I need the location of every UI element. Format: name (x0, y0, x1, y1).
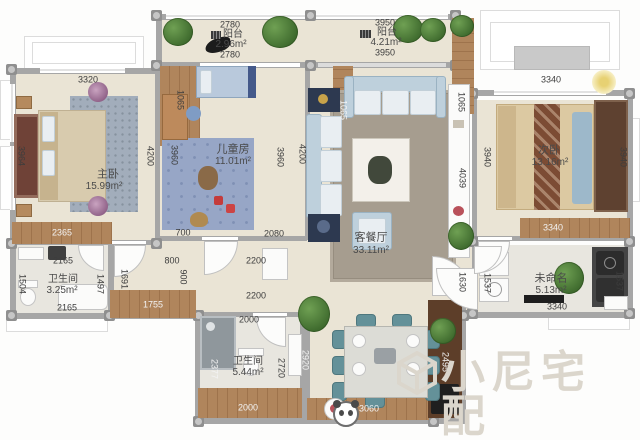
window (40, 68, 125, 73)
pillow (42, 116, 55, 142)
sofa-cushion (354, 90, 381, 115)
label-kids-name: 儿童房 (217, 145, 250, 156)
sofa-cushion (410, 90, 436, 115)
wall-post (6, 64, 17, 75)
dim-hall-800: 800 (164, 257, 179, 266)
window (494, 90, 606, 95)
tv-decor (453, 206, 464, 216)
panda-ear (351, 400, 359, 408)
dim-bath2-top: 2000 (239, 316, 259, 325)
dim-kids-right: 3960 (276, 147, 285, 167)
tv-decor (453, 120, 464, 128)
door-gap (202, 237, 238, 240)
label-living-name: 客餐厅 (355, 233, 388, 244)
plate (352, 362, 366, 376)
watermark-logo (396, 350, 438, 396)
dim-bath1-left: 1504 (18, 274, 27, 294)
dim-bath1-right: 1497 (96, 274, 105, 294)
toy (226, 204, 235, 213)
bay-window (6, 318, 108, 332)
pillow-band (498, 106, 516, 208)
dim-kids-left: 3960 (170, 145, 179, 165)
dim-kids-700: 700 (175, 229, 190, 238)
door-gap (112, 241, 146, 244)
label-kids-area: 11.01m² (215, 157, 251, 167)
wardrobe (520, 218, 630, 238)
dim-unnamed-outer: 1630 (458, 272, 467, 292)
label-master-name: 主卧 (97, 170, 119, 181)
label-second-area: 13.16m² (532, 158, 569, 168)
pillow (42, 150, 55, 176)
plant (420, 18, 446, 42)
label-balcony2-area: 4.21m² (370, 38, 401, 48)
dim-bath2-left: 2377 (210, 359, 219, 379)
panda-eye (348, 410, 353, 416)
wall-post (305, 10, 316, 21)
wall (10, 313, 114, 319)
teddy-bear-toy (198, 166, 218, 190)
label-bath2-name: 卫生间 (233, 357, 263, 367)
label-bath1-name: 卫生间 (48, 275, 78, 285)
label-unnamed-area: 5.13m² (535, 286, 566, 296)
dim-master-left: 3964 (17, 146, 26, 166)
sofa-cushion (320, 116, 342, 148)
wall (472, 312, 632, 318)
toy (214, 196, 223, 205)
flower-plant (88, 196, 108, 216)
bay-window (32, 42, 136, 64)
dim-second-left: 3940 (483, 147, 492, 167)
label-second-name: 次卧 (538, 146, 560, 157)
pillow (200, 70, 212, 94)
kids-headboard (248, 66, 256, 98)
bed-throw (572, 112, 592, 204)
dim-second-right: 3940 (619, 147, 628, 167)
sofa-cushion (320, 150, 342, 182)
wall-post (624, 88, 635, 99)
label-balcony1-area: 2.96m² (215, 40, 246, 50)
bathroom-sink (18, 247, 44, 260)
plant (450, 15, 474, 37)
watermark-text: 小尼宅配 (441, 351, 640, 439)
panda-eye (339, 410, 344, 416)
table-runner (374, 348, 396, 364)
dim-second-bottom: 3340 (543, 224, 563, 233)
bay-window (548, 317, 630, 330)
wall-post (6, 310, 17, 321)
dim-bath1-bottom: 2165 (57, 304, 77, 313)
desk-chair (186, 106, 201, 121)
plant (262, 16, 298, 48)
wall-post (305, 60, 316, 71)
dim-bath1-top: 2165 (53, 257, 73, 266)
dim-bath2-bottom: 2000 (238, 404, 258, 413)
dim-balcony2-bottom: 3950 (375, 49, 395, 58)
radiator-icon (211, 31, 221, 39)
label-living-area: 33.11m² (353, 246, 389, 256)
dim-dining-bottom: 3060 (359, 405, 379, 414)
door-gap (478, 237, 512, 240)
dim-master-top: 3320 (78, 76, 98, 85)
plant (448, 222, 474, 250)
shower-head (206, 322, 215, 331)
sofa-cushion (320, 184, 342, 216)
window-sill (514, 46, 590, 70)
dim-hall-2200b: 2200 (246, 292, 266, 301)
wall-post (151, 238, 162, 249)
ceiling-lamp (592, 70, 616, 94)
label-bath2-area: 5.44m² (232, 368, 263, 378)
dim-master-right: 4200 (146, 146, 155, 166)
dim-balcony1-side: 1065 (176, 90, 185, 110)
sofa-cushion (382, 90, 409, 115)
floor-plan: 2780 阳台 2.96m² 2780 1065 3950 阳台 4.21m² … (0, 0, 640, 440)
dim-living-left: 4200 (298, 144, 307, 164)
dim-hall-900: 900 (179, 269, 188, 284)
dim-unnamed-left: 1537 (483, 273, 492, 293)
dim-hall-1755: 1755 (143, 301, 163, 310)
dim-second-top: 3340 (541, 76, 561, 85)
plant (430, 318, 456, 344)
console-decor (318, 94, 328, 104)
plate (352, 334, 366, 348)
plant (163, 18, 193, 46)
label-bath1-area: 3.25m² (46, 286, 77, 296)
table-centerpiece (368, 156, 392, 184)
dim-dining-left: 2920 (301, 350, 310, 370)
label-master-area: 15.99m² (86, 182, 123, 192)
toilet-tank (238, 348, 264, 356)
rocking-toy (190, 212, 208, 227)
speaker-cone (317, 220, 330, 233)
nightstand (16, 96, 32, 109)
dim-hall-1691: 1691 (120, 269, 129, 289)
flower-plant (88, 82, 108, 102)
wall-post (151, 10, 162, 21)
dim-unnamed-bottom: 3340 (547, 303, 567, 312)
plate (406, 334, 420, 348)
sink-basin (604, 257, 616, 269)
sofa-armrest (436, 76, 446, 118)
dim-balcony1-bottom: 2780 (220, 51, 240, 60)
cabinet (604, 296, 628, 310)
plant (298, 296, 330, 332)
dim-living-right: 4039 (458, 168, 467, 188)
dim-master-bottom: 2365 (52, 229, 72, 238)
dim-balcony2-side-left: 1065 (339, 100, 348, 120)
dim-balcony2-side-right: 1065 (457, 92, 466, 112)
radiator-icon (360, 30, 371, 38)
panda-logo (333, 401, 359, 427)
dim-hall-2200a: 2200 (246, 257, 266, 266)
label-unnamed-name: 未命名 (535, 274, 568, 285)
panda-ear (333, 400, 341, 408)
dim-bath2-right: 2720 (277, 358, 286, 378)
nightstand (16, 204, 32, 217)
dim-unnamed-right: 1537 (615, 271, 624, 291)
dim-kids-2080: 2080 (264, 230, 284, 239)
